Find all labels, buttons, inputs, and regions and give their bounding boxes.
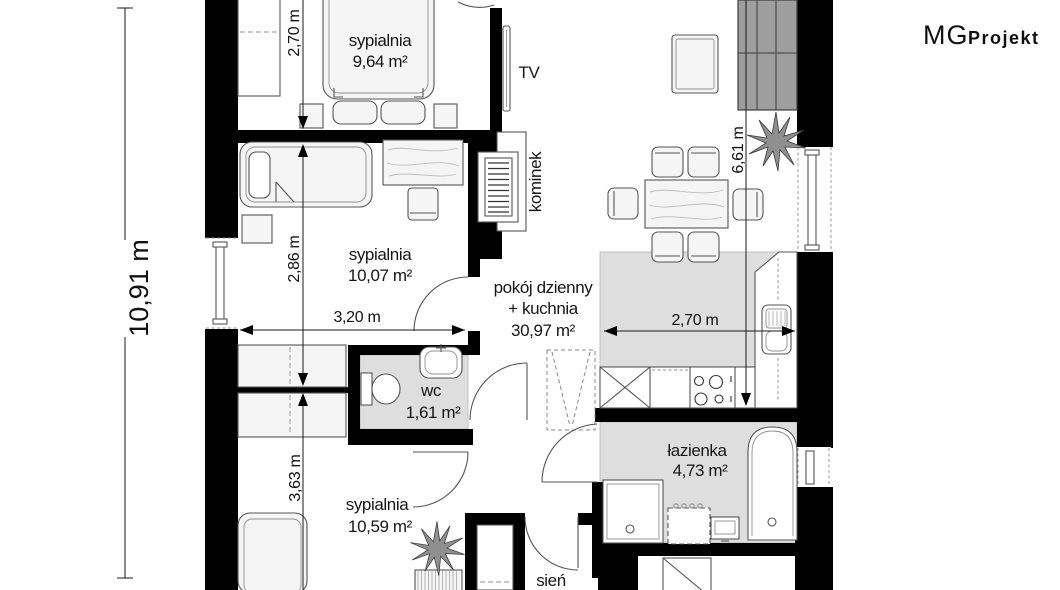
window-left-cap-top [213,242,227,247]
dim-bedroom3-label: 3,63 m [287,454,304,501]
window-bathroom-glass [806,451,814,484]
wall-bedroom3-north [348,429,473,445]
door-wc [470,363,527,420]
chair-bottom-left [652,232,683,262]
tv-label: TV [519,63,541,82]
bedroom1-label: sypialnia [349,31,412,50]
counter-row [600,367,755,408]
door-bedroom1-arc [458,2,494,7]
desk-b2 [383,140,463,185]
pillow-left [333,101,377,124]
chair-left [608,188,638,219]
bathroom-area: 4,73 m² [673,461,729,480]
bedroom2-furniture [240,140,463,243]
shower [603,480,663,543]
dim-kitchen-label: 2,70 m [671,312,718,329]
wall-jamb-hall-door [578,513,592,525]
wall-jamb-bedroom2-door-top [468,255,480,277]
bedroom1-furniture [238,0,457,128]
single-bed-b3 [238,513,307,590]
wall-right-upper [797,0,833,147]
nightstand-right [434,104,457,128]
window-left-cap-bottom [213,319,227,324]
floor-plan-drawing: 10,91 m 2,70 m 2,86 m 3,63 m 3,20 m 2,70… [0,0,1060,590]
fireplace-label: kominek [526,151,545,212]
shower-drain [626,525,634,533]
window-living-cap-top [805,150,819,155]
bathroom-label: łazienka [667,441,727,460]
pillow-right [381,101,425,124]
chair-top-left [652,147,683,177]
armchair [672,35,718,93]
wall-closet-divider [238,387,348,393]
living-kitchen-area: 30,97 m² [511,321,576,340]
wc-area: 1,61 m² [406,403,462,422]
bedroom1-area: 9,64 m² [353,52,409,71]
dim-bedroom1-label: 2,70 m [286,9,303,56]
wall-right-lower [795,487,833,590]
wc-label: wc [420,381,442,400]
tv-set [503,26,510,111]
window-left [205,238,238,329]
closet-upper [238,345,346,387]
hall-label: sień [536,571,566,590]
wall-bathroom-south [595,543,797,556]
dim-bedroom2-width-arrow-left [240,325,253,335]
dim-bedroom2-label: 2,86 m [286,235,303,282]
wardrobe-bedroom1 [238,0,280,96]
window-living [797,147,833,252]
hall-closet-interior [477,525,513,590]
wall-below-bathroom [598,556,638,590]
dim-bedroom2-width-label: 3,20 m [333,309,380,326]
door-bedroom3 [413,452,468,507]
wall-wc-west [348,345,360,438]
door-bathroom [542,424,597,482]
bathtub-drain [768,518,776,526]
chair-bottom-right [688,232,719,262]
dim-overall-label: 10,91 m [124,239,154,337]
dim-bedroom2-width-arrow-right [452,325,465,335]
window-living-cap-bottom [805,245,819,250]
attic-stair-v1 [552,352,570,426]
wall-hall-closet-east [513,513,525,590]
attic-stair [547,350,595,430]
wall-kitchen-south [595,408,797,422]
chair-b2 [408,188,438,220]
window-living-glass [808,153,816,248]
bedroom2-area: 10,07 m² [348,266,413,285]
attic-stair-v2 [572,352,590,426]
dim-living-label: 6,61 m [730,126,747,173]
floor-plan-page: 10,91 m 2,70 m 2,86 m 3,63 m 3,20 m 2,70… [0,0,1060,590]
toilet-bowl [372,374,400,404]
living-kitchen-label-2: + kuchnia [508,299,579,318]
window-bathroom [797,447,831,487]
brand-logo-projekt: Projekt [968,28,1040,48]
toilet-tank [361,373,372,405]
wall-left-lower [205,329,238,590]
wall-tv [490,8,502,132]
bedroom2-label: sypialnia [349,245,412,264]
wall-right-middle [797,252,833,448]
closet-lower [238,393,346,437]
washing-machine [668,508,710,544]
plant-bedroom3-icon [410,521,464,575]
nightstand-b2 [242,215,272,243]
bedroom3-area: 10,59 m² [348,517,413,536]
bedroom3-label: sypialnia [346,495,409,514]
chair-right [733,189,763,220]
living-kitchen-label-1: pokój dzienny [494,278,594,297]
chair-top-right [688,147,719,177]
dining-table [645,180,728,228]
pillow-b2 [249,152,270,198]
door-bedroom2-arc [414,277,468,331]
furnace-box [663,558,711,590]
window-left-glass [216,245,224,322]
brand-logo-mg: MG [923,20,969,50]
door-hall [525,517,578,570]
wall-left-upper [205,0,238,238]
corner-sofa [738,0,797,110]
